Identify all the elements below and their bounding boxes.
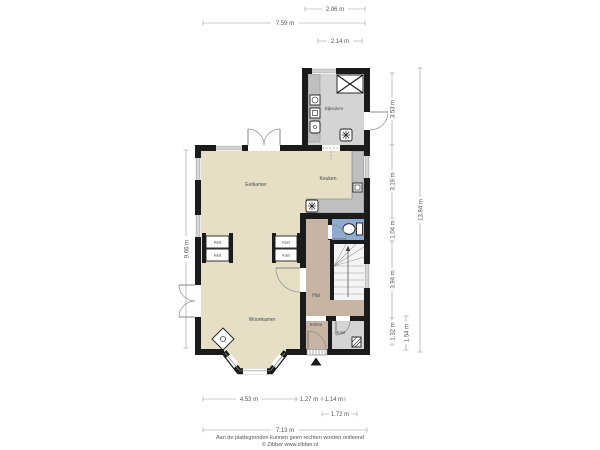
floor-stairs [334, 244, 364, 300]
window [195, 215, 201, 237]
door-garden-double [248, 129, 280, 145]
opening-toilet-door [328, 225, 332, 239]
dim-label: 4.53 m [240, 397, 258, 403]
dim-label: 3.19 m [391, 172, 397, 190]
wall-bottom-left [195, 349, 224, 355]
room-label-kast: Kast [337, 330, 346, 335]
dim-label: 3.94 m [391, 270, 397, 288]
footer: Aan de plattegronden kunnen geen rechten… [216, 435, 364, 448]
wall-toilet-stairs [330, 240, 364, 244]
dim-label: 1.54 m [405, 324, 411, 342]
wall-bijkeuken-left [302, 68, 308, 151]
footer-disclaimer: Aan de plattegronden kunnen geen rechten… [216, 435, 364, 441]
wall-stairs-left [330, 244, 334, 300]
opening-kast-door [336, 316, 350, 321]
window [195, 158, 201, 180]
floors [201, 74, 364, 371]
sink-asterisk-icon [340, 129, 352, 141]
opening-hal-woonkamer [300, 268, 306, 292]
dim-top-2: 7.59 m [203, 19, 365, 27]
dim-top-3: 2.14 m [318, 37, 362, 45]
closet-flank-right-2 [297, 233, 301, 263]
room-label-woonkamer: Woonkamer [249, 317, 276, 323]
closet-flank-left-2 [229, 233, 233, 263]
doormat-icon [307, 350, 327, 356]
dim-label: 1.04 m [391, 220, 397, 238]
opening-hal-entree [306, 316, 326, 321]
dim-bottom-3: 7.13 m [203, 426, 367, 434]
door-bijkeuken-exterior [370, 112, 388, 130]
entrance-triangle-icon [311, 358, 322, 366]
window [364, 156, 370, 178]
dim-label: 2.14 m [331, 39, 349, 45]
toilet-icon [343, 223, 363, 235]
room-label-keuken: Keuken [320, 176, 337, 182]
dim-bottom-1: 4.53 m 1.27 m 1.14 m [203, 395, 345, 403]
dim-label: 3.53 m [391, 100, 397, 118]
closet-flank-left-1 [202, 233, 206, 263]
footer-copyright: © Zibber www.zibber.nl [262, 441, 318, 448]
floor-plan-page: Kast Kast Kast Kast [0, 0, 600, 450]
dim-label: 1.32 m [391, 322, 397, 340]
dim-right-col1: 3.53 m 3.19 m 1.04 m 3.94 m 1.32 m [388, 73, 397, 345]
dim-label: 1.27 m [300, 397, 318, 403]
dryer-icon [310, 108, 320, 118]
closet-label: Kast [214, 254, 223, 258]
room-label-bijkeuken: Bijkeuken [325, 106, 344, 111]
sink-asterisk-icon [306, 200, 318, 212]
room-label-entree: Entree [310, 322, 323, 327]
hob-icon [353, 183, 362, 192]
dim-label: 13.84 m [419, 199, 425, 221]
dim-label: 9.66 m [185, 240, 191, 258]
closet-label: Kast [214, 241, 223, 245]
room-label-eetkamer: Eetkamer [245, 182, 267, 188]
dim-label: 1.14 m [325, 397, 343, 403]
dim-bottom-2: 1.72 m [322, 410, 357, 418]
dim-label: 2.96 m [326, 7, 344, 13]
dim-right-overall: 13.84 m [416, 68, 425, 352]
wall-entree-kast [328, 321, 332, 349]
dim-label: 1.72 m [331, 412, 349, 418]
dim-right-col2: 1.54 m [402, 316, 411, 350]
room-label-hal: Hal [312, 293, 320, 299]
boiler-icon [310, 121, 320, 133]
closet-label: Kast [282, 254, 291, 258]
dim-label: 7.59 m [276, 21, 294, 27]
dim-left-1: 9.66 m [182, 150, 191, 348]
washer-icon [310, 95, 320, 105]
crossed-box-icon [337, 75, 363, 93]
dim-top-1: 2.96 m [305, 5, 365, 13]
floor-plan: Kast Kast Kast Kast [0, 0, 600, 450]
door-gap-bijkeuken [364, 112, 370, 130]
appliance-icons [310, 95, 320, 133]
window [364, 264, 370, 288]
door-gap-french [195, 285, 201, 317]
window [216, 145, 242, 151]
window [312, 68, 336, 74]
wall-right [364, 68, 370, 355]
closet-label: Kast [282, 241, 291, 245]
dim-label: 7.13 m [276, 428, 294, 434]
wall-bottom-right [286, 349, 370, 355]
meter-box-icon [352, 337, 361, 347]
door-gap-garden-double [248, 145, 280, 151]
wall-keuken-hal [300, 213, 370, 219]
door-french-double [179, 285, 195, 317]
